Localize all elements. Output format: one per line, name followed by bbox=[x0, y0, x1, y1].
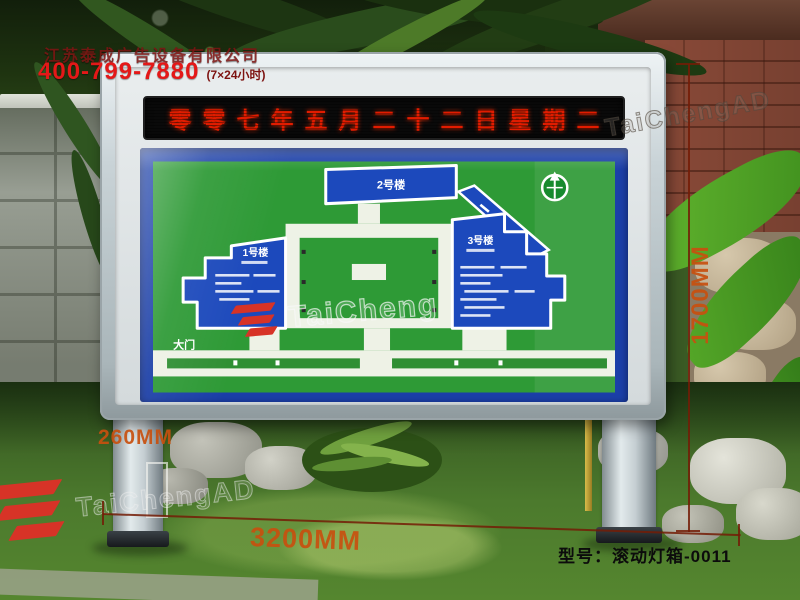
map-courtyard-feature bbox=[352, 264, 386, 280]
hedge-marker bbox=[276, 360, 280, 365]
directory-row bbox=[253, 274, 275, 277]
directory-row bbox=[464, 306, 504, 309]
led-display: 零零七年五月二十二日星期二 bbox=[143, 96, 625, 140]
map-dot bbox=[302, 280, 306, 284]
gate-label: 大门 bbox=[173, 337, 195, 351]
led-date-text: 零零七年五月二十二日星期二 bbox=[158, 101, 611, 135]
directory-row bbox=[464, 290, 508, 293]
rock bbox=[662, 505, 724, 543]
directory-row bbox=[515, 290, 535, 293]
dimension-tick bbox=[738, 524, 740, 546]
contact-row: 400-799-7880 (7×24小时) bbox=[38, 58, 266, 86]
height-dimension-label: 1700MM bbox=[687, 215, 717, 375]
phone-hours: (7×24小时) bbox=[206, 66, 265, 83]
map-path-connector bbox=[462, 328, 506, 350]
directory-row bbox=[215, 274, 249, 277]
phone-number: 400-799-7880 bbox=[38, 58, 199, 86]
product-photo: 零零七年五月二十二日星期二 2号楼 bbox=[0, 0, 800, 600]
depth-dimension-label: 260MM bbox=[98, 426, 173, 450]
yellow-pole bbox=[585, 415, 592, 511]
directory-row bbox=[215, 290, 253, 293]
directory-row bbox=[460, 298, 496, 301]
hedge-marker bbox=[233, 360, 237, 365]
directory-row bbox=[257, 290, 279, 293]
dimension-tick bbox=[102, 501, 104, 525]
dimension-tick bbox=[676, 63, 700, 65]
directory-row bbox=[460, 274, 502, 277]
building-3-label: 3号楼 bbox=[468, 234, 494, 247]
directory-row bbox=[215, 282, 241, 285]
site-map: 2号楼 3号楼 1号楼 大门 bbox=[153, 161, 615, 393]
directory-row bbox=[460, 314, 490, 317]
depth-bracket bbox=[146, 462, 168, 518]
taicheng-logo-icon bbox=[231, 299, 282, 343]
width-dimension-label: 3200MM bbox=[249, 522, 361, 557]
taicheng-logo-icon bbox=[0, 474, 74, 552]
building-1-subtext bbox=[241, 261, 267, 264]
directory-row bbox=[219, 298, 249, 301]
building-3-subtext bbox=[466, 249, 494, 252]
directory-row bbox=[501, 266, 527, 269]
map-dot bbox=[432, 280, 436, 284]
directory-row bbox=[460, 266, 494, 269]
model-number-label: 型号：滚动灯箱-0011 bbox=[558, 542, 732, 567]
map-path-connector bbox=[358, 204, 380, 224]
directory-row bbox=[460, 282, 490, 285]
building-2-label: 2号楼 bbox=[377, 178, 405, 192]
map-dot bbox=[302, 250, 306, 254]
building-1-label: 1号楼 bbox=[243, 246, 269, 259]
map-hedge bbox=[167, 358, 360, 368]
map-dot bbox=[432, 250, 436, 254]
map-path-connector bbox=[364, 328, 390, 350]
hedge-marker bbox=[454, 360, 458, 365]
hedge-marker bbox=[498, 360, 502, 365]
rock bbox=[736, 488, 800, 540]
